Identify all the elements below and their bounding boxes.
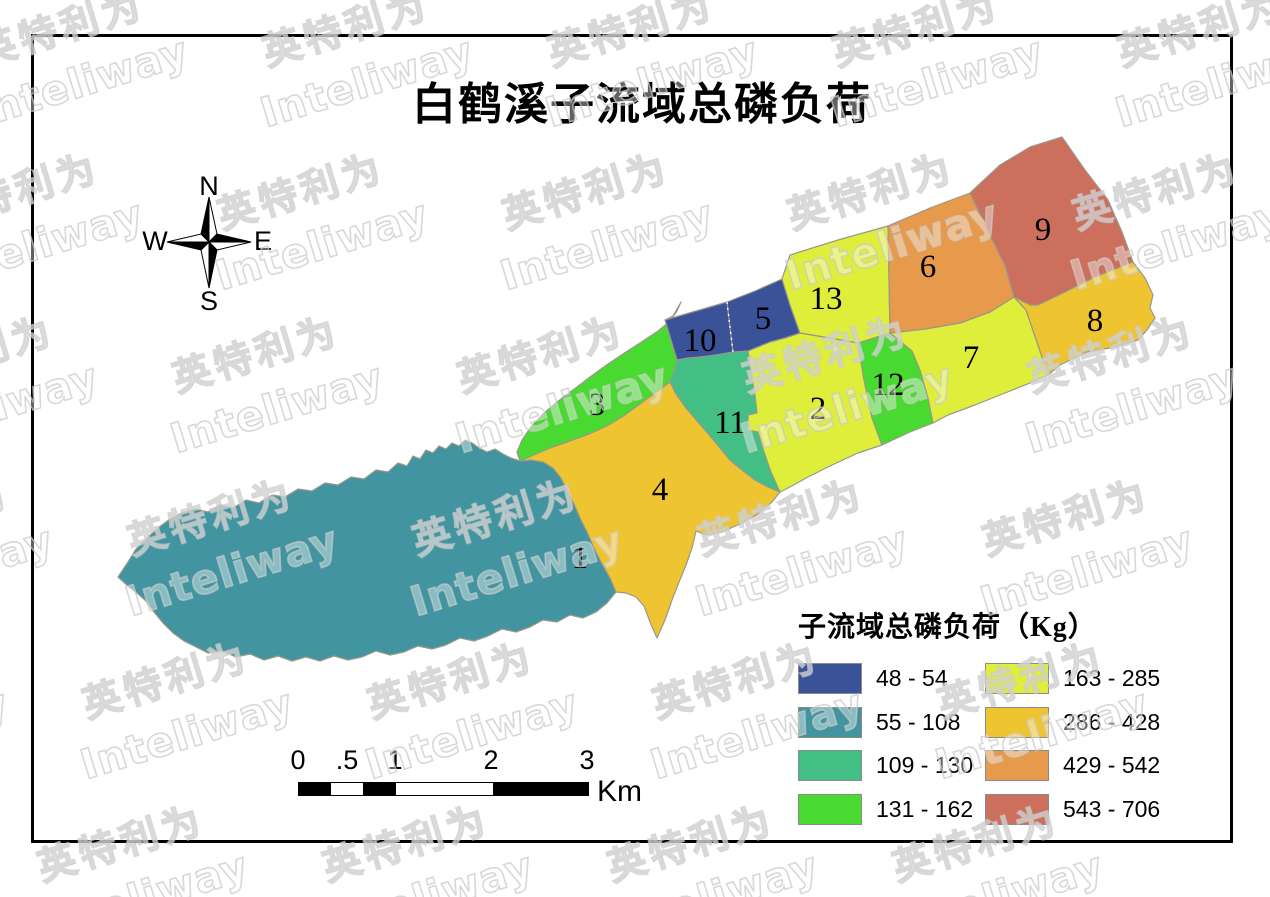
legend-color-swatch [798, 794, 862, 825]
legend-items: 48 - 5455 - 108109 - 130131 - 162163 - 2… [798, 663, 1160, 837]
legend-range-label: 543 - 706 [1063, 796, 1160, 823]
region-number-label: 7 [963, 340, 980, 376]
legend-range-label: 55 - 108 [876, 709, 960, 736]
scale-bar-tick-label: .5 [336, 745, 359, 776]
legend-title: 子流域总磷负荷（Kg） [798, 605, 1160, 645]
scale-bar-segment [493, 783, 588, 795]
legend-item: 48 - 54 [798, 663, 985, 694]
legend-item: 429 - 542 [985, 750, 1160, 781]
region-number-label: 9 [1035, 212, 1052, 248]
scale-bar-tick-label: 3 [579, 745, 594, 776]
compass-rose-icon: N E S W [130, 165, 290, 325]
legend-color-swatch [985, 663, 1049, 694]
legend-item: 55 - 108 [798, 707, 985, 738]
legend-color-swatch [985, 750, 1049, 781]
legend: 子流域总磷负荷（Kg） 48 - 5455 - 108109 - 130131 … [798, 605, 1160, 837]
compass-south-label: S [200, 286, 218, 316]
compass-east-label: E [254, 226, 272, 256]
compass-north-label: N [199, 171, 219, 201]
region-number-label: 13 [810, 281, 843, 317]
scale-bar-segment [299, 783, 331, 795]
region-number-label: 10 [684, 323, 717, 359]
subwatershed-region-1 [118, 440, 616, 661]
legend-range-label: 429 - 542 [1063, 752, 1160, 779]
region-number-label: 3 [589, 387, 606, 423]
region-number-label: 11 [714, 405, 746, 441]
scale-bar-unit: Km [597, 775, 642, 809]
legend-range-label: 163 - 285 [1063, 665, 1160, 692]
region-number-label: 1 [572, 540, 589, 576]
legend-color-swatch [798, 707, 862, 738]
scale-bar: 0.5123 Km [298, 745, 658, 805]
legend-range-label: 131 - 162 [876, 796, 973, 823]
region-number-label: 6 [920, 249, 937, 285]
legend-range-label: 109 - 130 [876, 752, 973, 779]
scale-bar-tick-label: 0 [290, 745, 305, 776]
region-number-label: 5 [755, 301, 772, 337]
region-number-label: 2 [810, 391, 827, 427]
region-number-label: 8 [1087, 303, 1104, 339]
map-page: 13411212710513698 白鹤溪子流域总磷负荷 N E S W 子流域… [0, 0, 1270, 897]
legend-range-label: 286 - 428 [1063, 709, 1160, 736]
scale-bar-track [298, 782, 589, 796]
legend-item: 109 - 130 [798, 750, 985, 781]
legend-item: 543 - 706 [985, 794, 1160, 825]
legend-color-swatch [985, 707, 1049, 738]
legend-color-swatch [985, 794, 1049, 825]
legend-item: 286 - 428 [985, 707, 1160, 738]
compass-west-label: W [142, 226, 168, 256]
legend-range-label: 48 - 54 [876, 665, 948, 692]
scale-bar-tick-label: 1 [387, 745, 402, 776]
region-number-label: 4 [652, 472, 669, 508]
scale-bar-tick-label: 2 [483, 745, 498, 776]
legend-item: 131 - 162 [798, 794, 985, 825]
region-number-label: 12 [872, 367, 905, 403]
scale-bar-segment [363, 783, 396, 795]
legend-color-swatch [798, 750, 862, 781]
legend-color-swatch [798, 663, 862, 694]
page-title: 白鹤溪子流域总磷负荷 [412, 68, 872, 132]
legend-item: 163 - 285 [985, 663, 1160, 694]
